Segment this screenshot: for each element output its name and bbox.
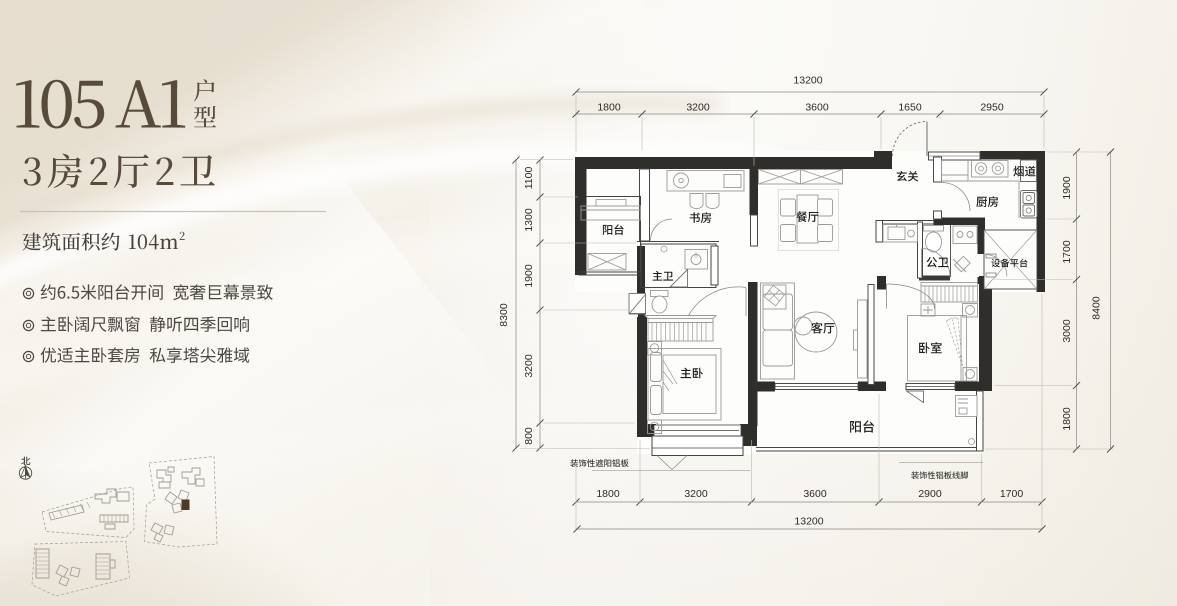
svg-text:3000: 3000 — [1061, 319, 1073, 343]
svg-text:3200: 3200 — [684, 488, 708, 500]
svg-text:2900: 2900 — [918, 488, 942, 500]
svg-text:800: 800 — [523, 427, 535, 445]
svg-text:1800: 1800 — [1061, 407, 1073, 431]
svg-text:1100: 1100 — [523, 167, 535, 190]
svg-text:1650: 1650 — [898, 102, 922, 114]
svg-text:3600: 3600 — [803, 488, 827, 500]
svg-text:3200: 3200 — [686, 102, 710, 114]
svg-text:8400: 8400 — [1091, 296, 1103, 320]
svg-text:3200: 3200 — [523, 354, 535, 378]
svg-text:1800: 1800 — [597, 102, 621, 114]
svg-text:1800: 1800 — [596, 488, 620, 500]
svg-text:13200: 13200 — [793, 75, 822, 87]
svg-text:1900: 1900 — [1061, 176, 1073, 200]
svg-text:1900: 1900 — [523, 264, 535, 288]
svg-text:1700: 1700 — [1000, 488, 1024, 500]
svg-text:3600: 3600 — [805, 102, 829, 114]
svg-text:13200: 13200 — [794, 516, 823, 528]
svg-text:8300: 8300 — [498, 303, 510, 327]
svg-text:1300: 1300 — [523, 208, 535, 232]
svg-text:2950: 2950 — [980, 102, 1004, 114]
svg-text:1700: 1700 — [1061, 240, 1073, 264]
